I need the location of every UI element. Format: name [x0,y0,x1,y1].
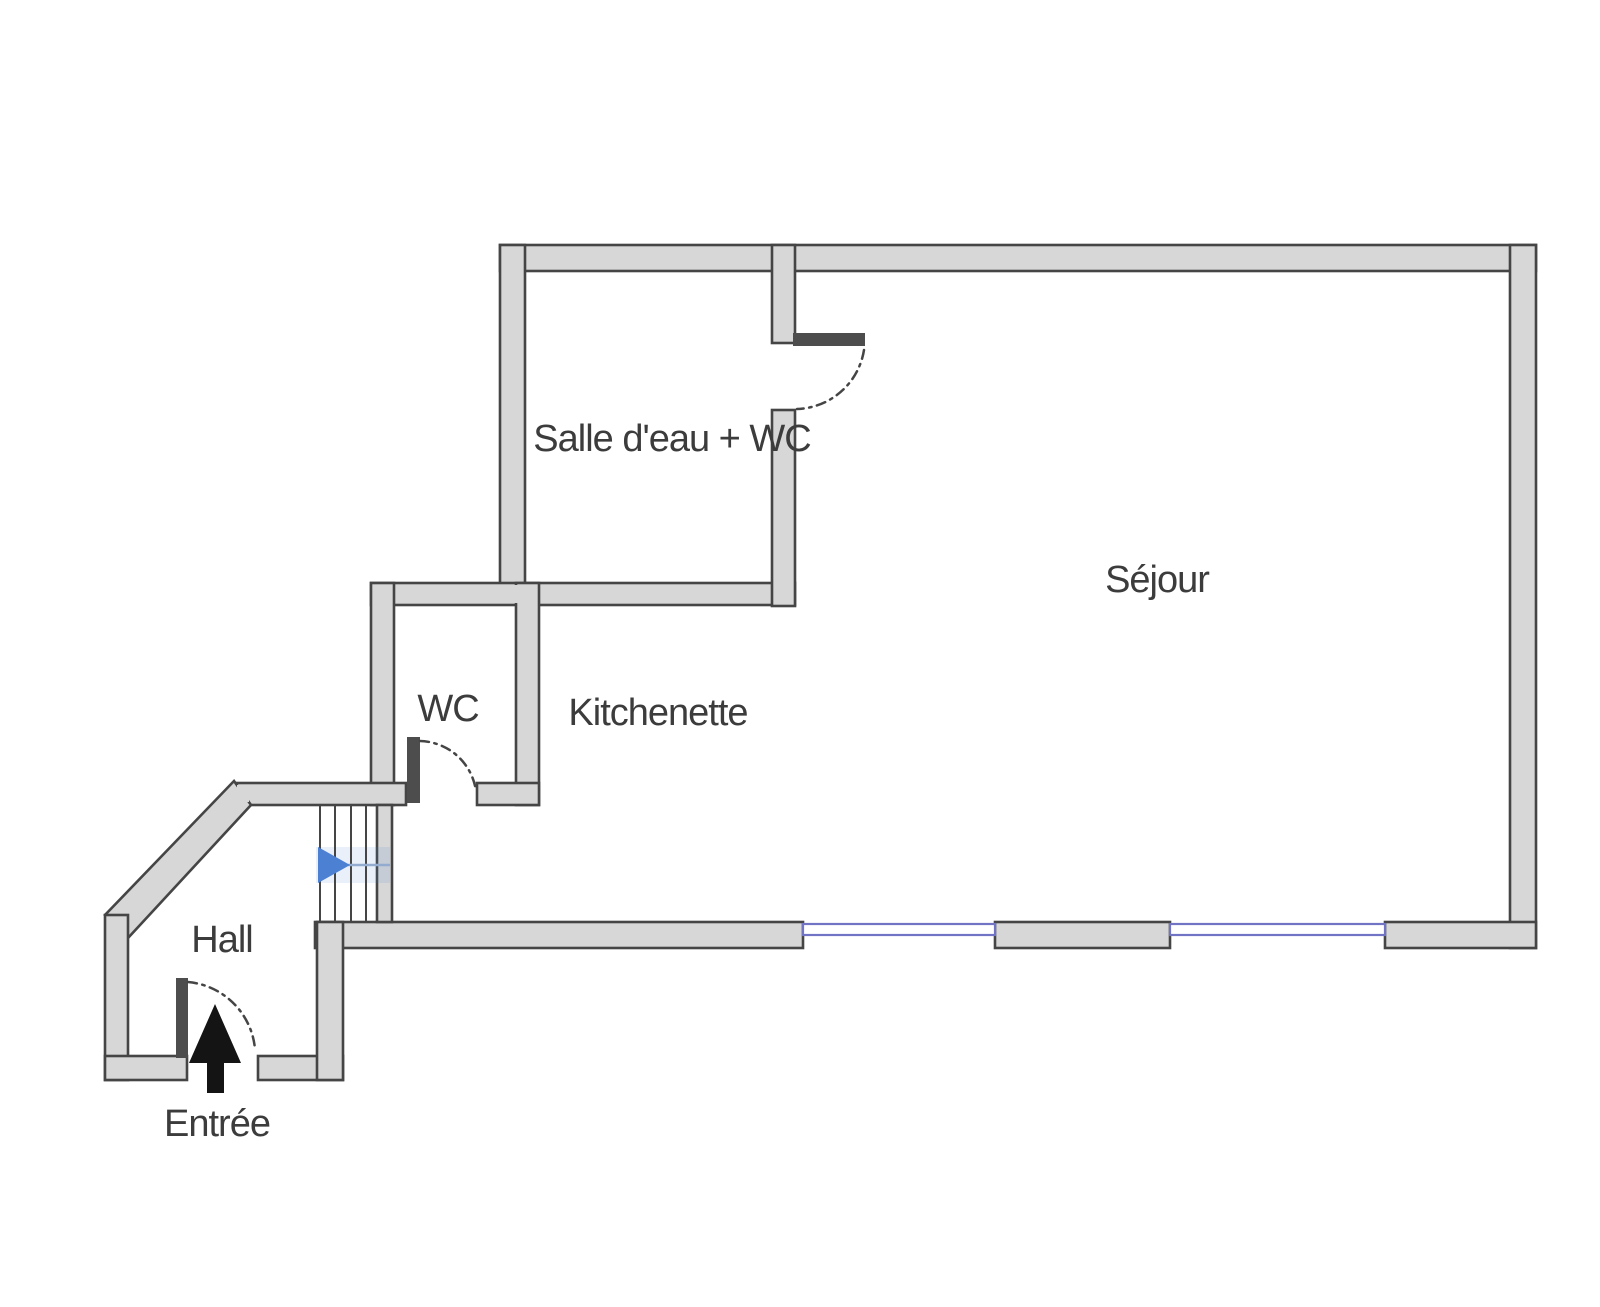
entrance-door-leaf [176,978,188,1058]
floor-plan-canvas: Salle d'eau + WC Séjour WC Kitchenette H… [0,0,1600,1307]
wc-door-leaf [407,737,420,803]
wall-wc-left [371,583,394,805]
room-label-sejour: Séjour [1105,559,1210,601]
bathroom-door-leaf [793,333,865,346]
room-label-salle-deau: Salle d'eau + WC [533,418,810,460]
wall-bottom-segment-2 [995,922,1170,948]
window-sejour-right [1170,924,1385,935]
bathroom-door-swing-arc [797,350,864,409]
wall-bathroom-right-upper [772,245,795,343]
window-sejour-left [803,924,995,935]
wall-wc-right [516,583,539,805]
room-label-entree: Entrée [164,1103,270,1145]
room-label-hall: Hall [191,919,252,961]
wall-top [500,245,1536,271]
room-label-wc: WC [417,688,478,730]
wall-right [1510,245,1536,948]
wc-door-swing-arc [420,741,476,791]
wall-left-upper [500,245,525,590]
entry-direction-arrow-icon [189,1004,241,1093]
wall-bottom-segment-1 [315,922,803,948]
room-label-kitchenette: Kitchenette [568,692,747,734]
walls [105,245,1536,1080]
wall-bathroom-bottom [371,583,795,605]
